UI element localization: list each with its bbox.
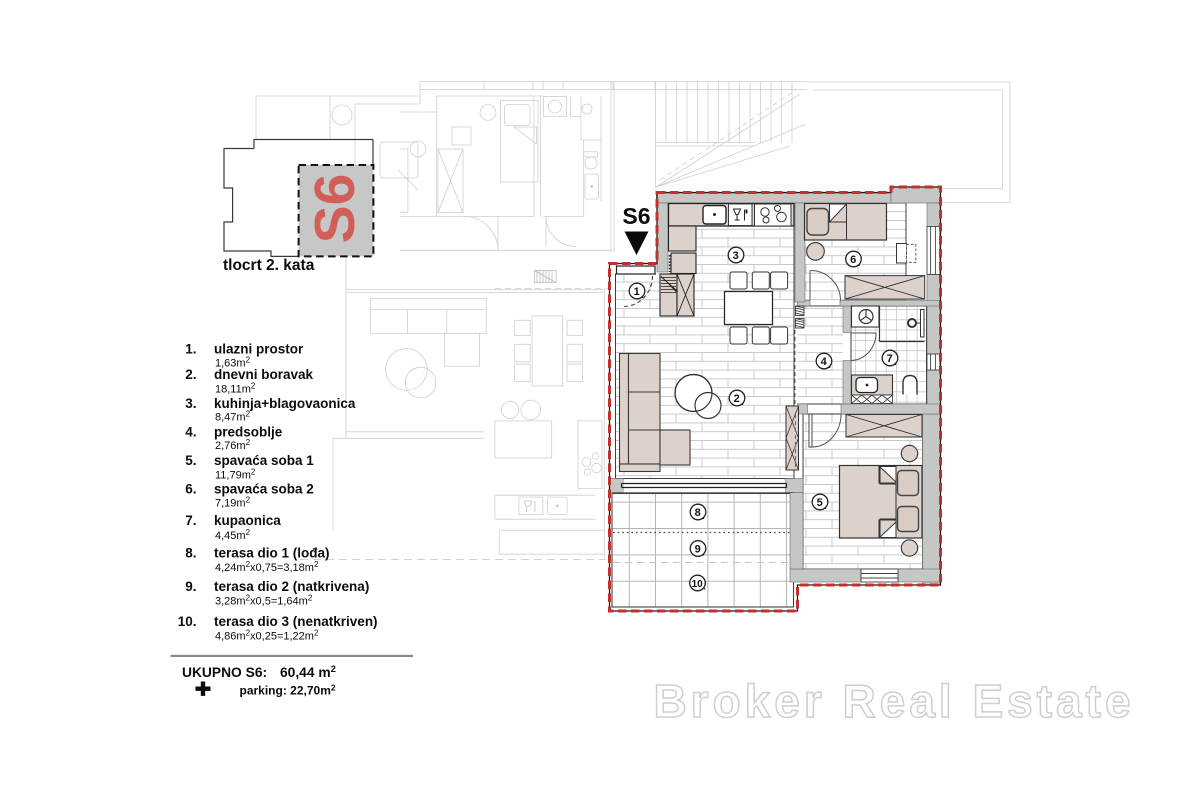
svg-text:tlocrt 2. kata: tlocrt 2. kata [223, 257, 315, 274]
svg-text:10: 10 [692, 579, 704, 590]
svg-text:9: 9 [695, 544, 701, 556]
svg-text:10.: 10. [178, 614, 197, 629]
svg-text:7.: 7. [185, 513, 196, 528]
svg-text:Broker Real Estate: Broker Real Estate [653, 675, 1134, 727]
svg-text:4: 4 [821, 356, 828, 368]
svg-text:kuhinja+blagovaonica: kuhinja+blagovaonica [214, 396, 356, 411]
svg-text:8.: 8. [185, 545, 196, 560]
svg-text:S6: S6 [622, 203, 650, 229]
svg-text:6: 6 [850, 254, 856, 266]
svg-text:3: 3 [733, 250, 739, 262]
svg-text:.: . [641, 290, 644, 300]
svg-text:.: . [894, 357, 897, 367]
svg-text:8,47m2: 8,47m2 [215, 410, 251, 424]
svg-text:UKUPNO S6:: UKUPNO S6: [182, 665, 267, 680]
svg-text:4,45m2: 4,45m2 [215, 528, 251, 542]
svg-text:3.: 3. [185, 396, 196, 411]
svg-text:.: . [740, 254, 743, 264]
svg-text:3,28m2x0,5=1,64m2: 3,28m2x0,5=1,64m2 [215, 594, 313, 608]
svg-text:9.: 9. [185, 579, 196, 594]
svg-text:.: . [703, 582, 706, 592]
svg-text:7: 7 [887, 353, 893, 365]
svg-text:.: . [741, 397, 744, 407]
svg-text:S6: S6 [303, 174, 367, 244]
svg-text:18,11m2: 18,11m2 [215, 381, 256, 395]
svg-text:5: 5 [817, 497, 823, 509]
svg-text:.: . [824, 501, 827, 511]
svg-text:parking: 22,70m2: parking: 22,70m2 [240, 683, 336, 698]
svg-text:.: . [702, 548, 705, 558]
svg-text:4.: 4. [185, 424, 196, 439]
svg-text:4,24m2x0,75=3,18m2: 4,24m2x0,75=3,18m2 [215, 560, 319, 574]
svg-text:5.: 5. [185, 453, 196, 468]
svg-text:4,86m2x0,25=1,22m2: 4,86m2x0,25=1,22m2 [215, 629, 319, 643]
svg-text:2,76m2: 2,76m2 [215, 438, 251, 452]
svg-text:11,79m2: 11,79m2 [215, 467, 256, 481]
svg-text:1.: 1. [185, 341, 196, 356]
svg-text:2: 2 [734, 393, 740, 405]
svg-text:ulazni prostor: ulazni prostor [214, 341, 304, 356]
svg-text:1: 1 [634, 286, 640, 298]
svg-text:.: . [702, 511, 705, 521]
svg-text:spavaća soba 1: spavaća soba 1 [214, 453, 314, 468]
svg-text:terasa dio 3 (nenatkriven): terasa dio 3 (nenatkriven) [214, 614, 378, 629]
svg-text:kupaonica: kupaonica [214, 513, 281, 528]
svg-text:spavaća soba 2: spavaća soba 2 [214, 481, 314, 496]
svg-text:6.: 6. [185, 481, 196, 496]
svg-text:terasa dio 2 (natkrivena): terasa dio 2 (natkrivena) [214, 579, 369, 594]
svg-text:2.: 2. [185, 367, 196, 382]
svg-text:.: . [858, 258, 861, 268]
svg-text:.: . [828, 360, 831, 370]
svg-text:60,44 m2: 60,44 m2 [280, 664, 336, 680]
svg-text:7,19m2: 7,19m2 [215, 496, 251, 510]
svg-text:terasa dio 1 (lođa): terasa dio 1 (lođa) [214, 545, 330, 560]
svg-text:8: 8 [695, 507, 701, 519]
svg-text:dnevni boravak: dnevni boravak [214, 367, 314, 382]
